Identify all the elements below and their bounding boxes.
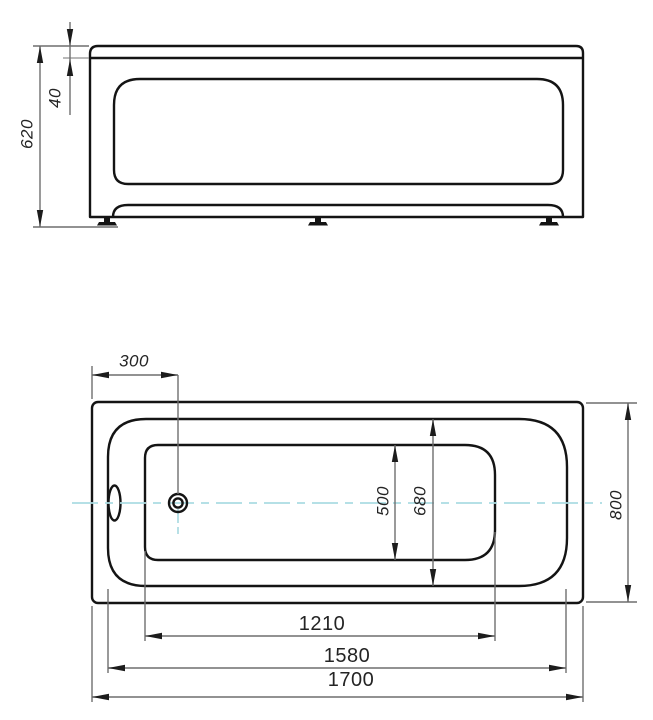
- foot-right: [539, 217, 559, 226]
- dimension-40: [63, 22, 89, 115]
- drawing-svg: [0, 0, 653, 720]
- foot-middle: [308, 217, 328, 226]
- dim-label-total-height: 620: [19, 119, 36, 149]
- front-skirt-line: [113, 205, 563, 217]
- front-outline: [90, 46, 583, 217]
- foot-left: [97, 217, 117, 226]
- dim-label-rim-height: 40: [47, 88, 64, 108]
- technical-drawing-canvas: 620 40 300 500 680 800 1210 1580 1700: [0, 0, 653, 720]
- dimension-300: [92, 366, 178, 494]
- dim-label-drain-offset: 300: [119, 353, 149, 370]
- dim-label-overall-width: 800: [608, 490, 625, 520]
- dim-label-inner-width: 680: [412, 486, 429, 516]
- dimension-620: [33, 46, 118, 227]
- dim-label-overall-length: 1700: [328, 670, 375, 690]
- front-apron-panel: [114, 79, 563, 184]
- front-view: [90, 46, 583, 226]
- dim-label-floor-length: 1210: [299, 614, 346, 634]
- plan-view: [72, 402, 602, 603]
- dim-label-floor-width: 500: [375, 486, 392, 516]
- dim-label-inner-length: 1580: [324, 646, 371, 666]
